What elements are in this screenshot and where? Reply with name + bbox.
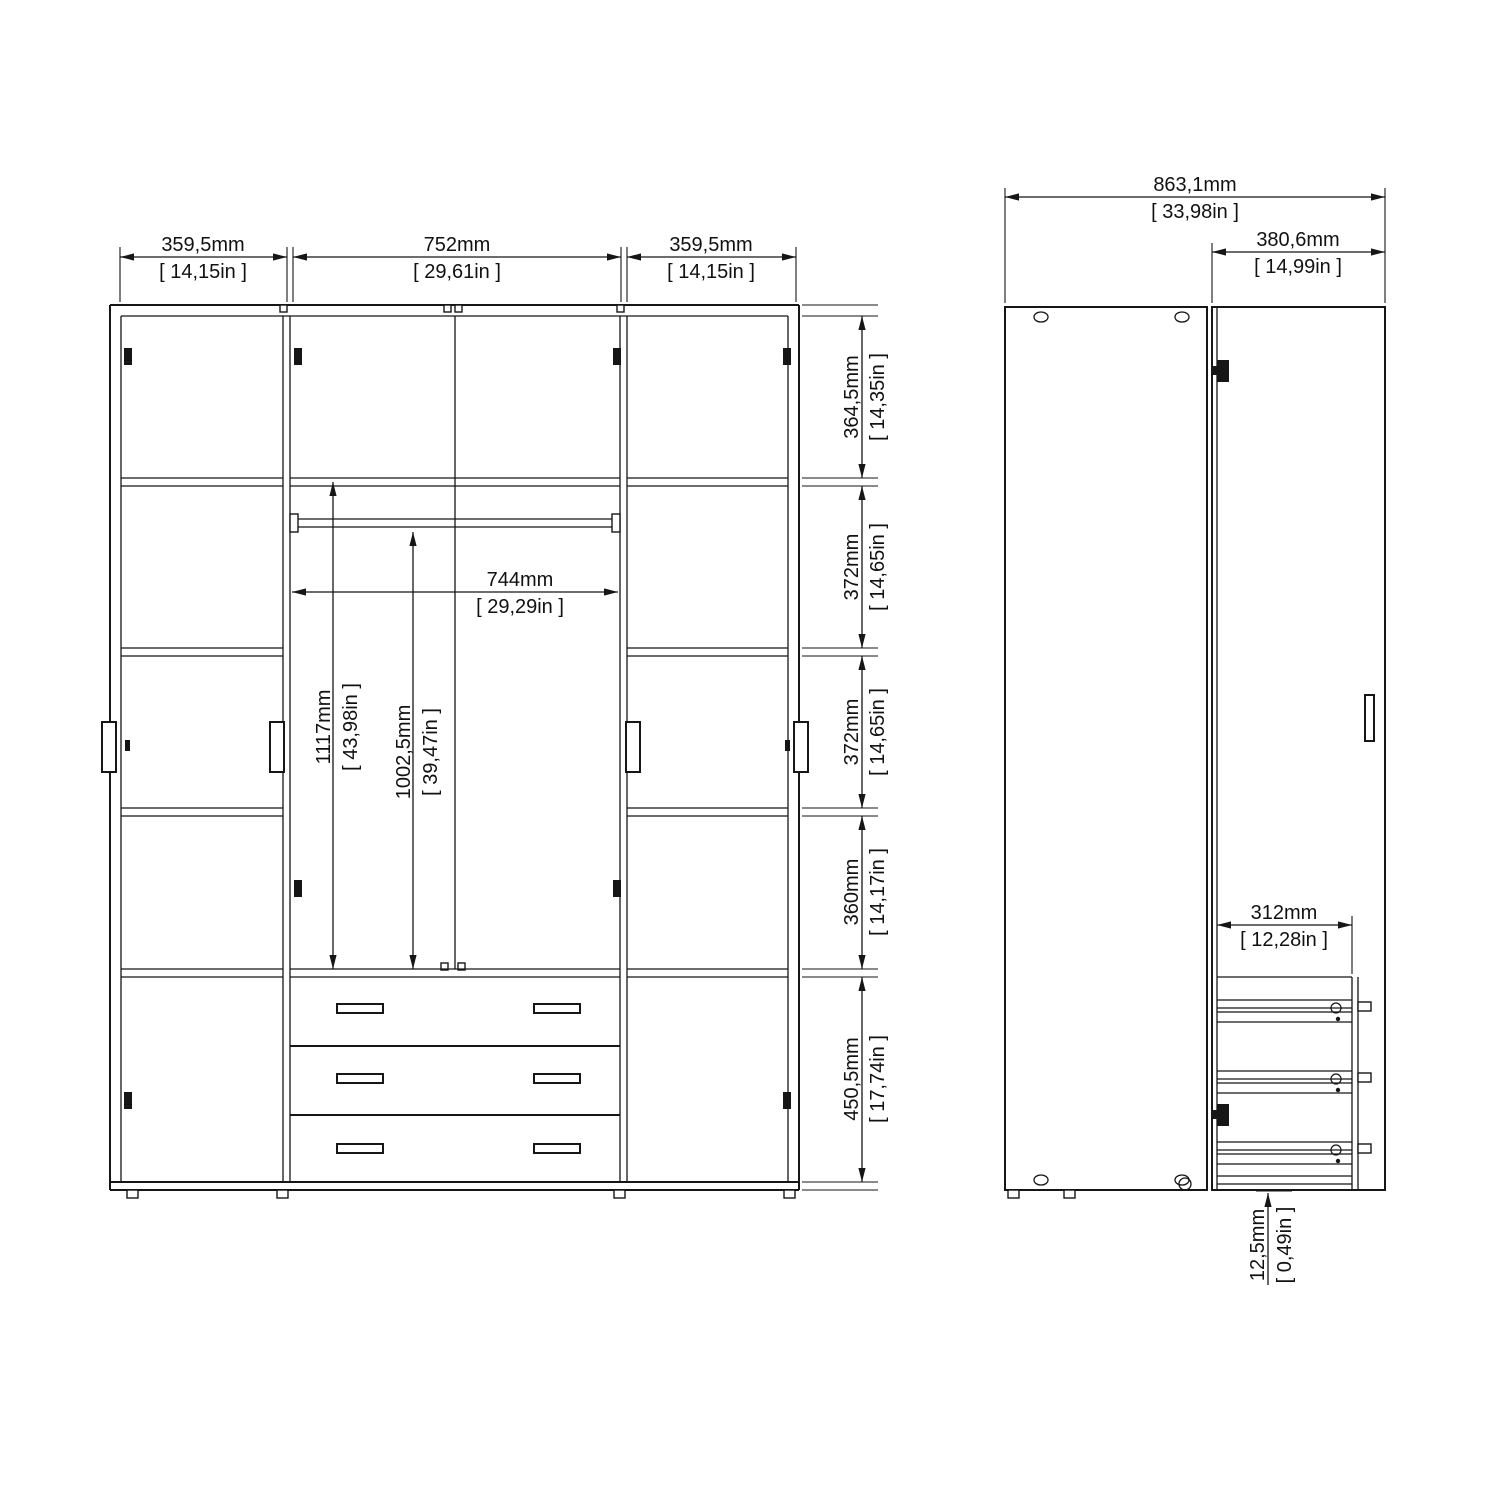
dim-rail-width-mm: 744mm [487, 569, 554, 591]
dim-hang-height-in: [ 39,47in ] [420, 708, 442, 796]
dim-total-depth-mm: 863,1mm [1153, 174, 1236, 196]
hinge-icon [783, 348, 791, 365]
hinge-icon [124, 348, 132, 365]
dim-height-4-mm: 360mm [841, 859, 863, 926]
hinge-icon [294, 880, 302, 897]
door-handle-center-left [270, 722, 284, 772]
drawer-handle [337, 1004, 383, 1013]
foot [614, 1190, 625, 1198]
dim-interior-height-in: [ 43,98in ] [340, 683, 362, 771]
dim-door-width-mm: 380,6mm [1256, 229, 1339, 251]
dim-width-right-in: [ 14,15in ] [667, 261, 755, 283]
hinge-icon [1211, 366, 1217, 375]
dim-total-depth-in: [ 33,98in ] [1151, 201, 1239, 223]
wardrobe-technical-drawing: 359,5mm [ 14,15in ] 752mm [ 29,61in ] 35… [0, 0, 1500, 1500]
dim-rail-width-in: [ 29,29in ] [476, 596, 564, 618]
drawer-handle [337, 1144, 383, 1153]
lock-pin-icon [125, 740, 130, 751]
rail-end-cap-left [290, 514, 298, 532]
dim-width-right-mm: 359,5mm [669, 234, 752, 256]
dim-hang-height-mm: 1002,5mm [393, 705, 415, 800]
drawer-handle [534, 1074, 580, 1083]
dim-door-width: 380,6mm [ 14,99in ] [1212, 229, 1385, 303]
drawer-handle [534, 1144, 580, 1153]
dim-top-widths: 359,5mm [ 14,15in ] 752mm [ 29,61in ] 35… [120, 234, 796, 302]
door-handle-side [1365, 695, 1374, 741]
dim-door-width-in: [ 14,99in ] [1254, 256, 1342, 278]
drawer-runner-tab [1358, 1144, 1371, 1153]
drawer-handle [534, 1004, 580, 1013]
dim-height-1-mm: 364,5mm [841, 355, 863, 438]
dim-drawer-depth-in: [ 12,28in ] [1240, 929, 1328, 951]
dim-height-5-mm: 450,5mm [841, 1037, 863, 1120]
dim-width-center-in: [ 29,61in ] [413, 261, 501, 283]
drawer-unit [290, 969, 620, 1153]
drawer-runner-tab [1358, 1073, 1371, 1082]
foot [277, 1190, 288, 1198]
hinge-icon [783, 1092, 791, 1109]
hinge-icon [613, 348, 621, 365]
foot [1008, 1190, 1019, 1198]
rail-end-cap-right [612, 514, 620, 532]
door-handle-right [794, 722, 808, 772]
drawer-runner-tab [1358, 1002, 1371, 1011]
dim-width-left-mm: 359,5mm [161, 234, 244, 256]
feet [127, 1190, 795, 1198]
dim-height-4-in: [ 14,17in ] [867, 848, 889, 936]
technical-drawing-page: 359,5mm [ 14,15in ] 752mm [ 29,61in ] 35… [0, 0, 1500, 1500]
dim-height-3-mm: 372mm [841, 699, 863, 766]
dim-drawer-depth-mm: 312mm [1251, 902, 1318, 924]
front-view: 359,5mm [ 14,15in ] 752mm [ 29,61in ] 35… [102, 234, 889, 1198]
dim-height-3-in: [ 14,65in ] [867, 688, 889, 776]
side-view: 863,1mm [ 33,98in ] 380,6mm [ 14,99in ] … [1005, 174, 1385, 1285]
dim-height-2-mm: 372mm [841, 534, 863, 601]
door-handle-center-right [626, 722, 640, 772]
dim-height-1-in: [ 14,35in ] [867, 353, 889, 441]
side-panel [1005, 307, 1207, 1190]
hinge-icon [1211, 1110, 1217, 1119]
dim-interior-height-mm: 1117mm [313, 690, 335, 765]
hinge-icon [1217, 360, 1229, 382]
foot [127, 1190, 138, 1198]
foot [784, 1190, 795, 1198]
drawer-handle [337, 1074, 383, 1083]
dim-foot-height-mm: 12,5mm [1247, 1209, 1269, 1281]
dim-foot-height: 12,5mm [ 0,49in ] [1247, 1191, 1296, 1285]
dim-width-left-in: [ 14,15in ] [159, 261, 247, 283]
hinge-icon [124, 1092, 132, 1109]
dim-foot-height-in: [ 0,49in ] [1274, 1207, 1296, 1284]
dim-height-5-in: [ 17,74in ] [867, 1035, 889, 1123]
hinge-icon [294, 348, 302, 365]
door-gap-blocks [280, 305, 624, 970]
dim-right-heights: 364,5mm [ 14,35in ] 372mm [ 14,65in ] 37… [802, 305, 889, 1190]
hinge-icon [613, 880, 621, 897]
dim-width-center-mm: 752mm [424, 234, 491, 256]
hinges [124, 348, 791, 1109]
open-door-panel [1212, 307, 1385, 1190]
door-handle-left [102, 722, 116, 772]
dim-height-2-in: [ 14,65in ] [867, 523, 889, 611]
hinge-icon [1217, 1104, 1229, 1126]
foot [1064, 1190, 1075, 1198]
lock-pin-icon [785, 740, 790, 751]
